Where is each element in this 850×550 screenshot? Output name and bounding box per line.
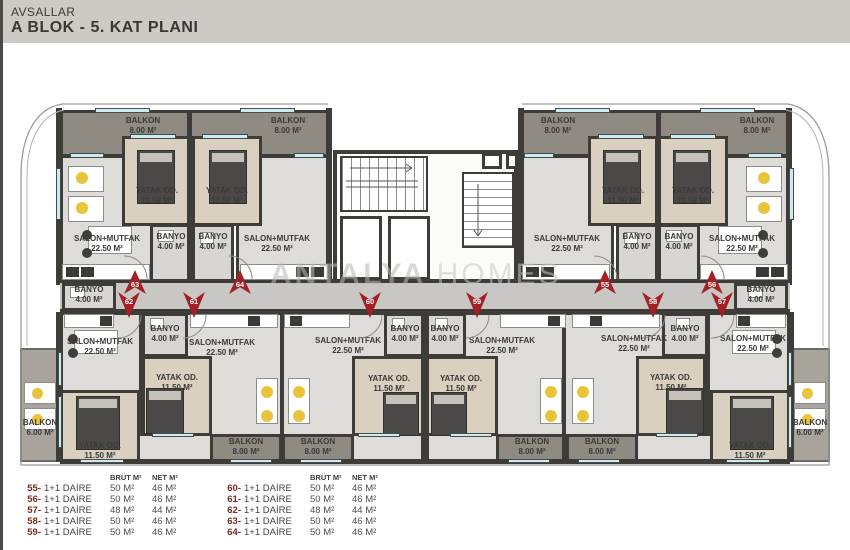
legend-cell: 44 M²: [352, 505, 394, 516]
room-label: SALON+MUTFAK22.50 M²: [588, 334, 680, 353]
watermark-light: HOMES: [437, 258, 562, 291]
legend-cell: NET M²: [352, 473, 394, 482]
window: [358, 433, 400, 437]
legend-cell: 46 M²: [352, 527, 394, 538]
legend-cell: 62-: [218, 505, 244, 516]
legend-cell: 50 M²: [110, 494, 152, 505]
cushion: [802, 388, 813, 399]
room-label: BALKON6.00 M²: [0, 418, 86, 437]
cushion: [261, 386, 273, 398]
cushion: [545, 386, 557, 398]
bed-pillow: [606, 153, 638, 162]
bed-pillow: [79, 399, 117, 408]
bed-pillow: [212, 153, 244, 162]
window: [748, 153, 782, 158]
legend-cell: 1+1 DAİRE: [244, 516, 310, 527]
room-label: BANYO4.00 M²: [633, 232, 725, 251]
cushion: [577, 410, 589, 422]
window: [555, 108, 610, 113]
legend-cell: 46 M²: [352, 494, 394, 505]
legend-cell: NET M²: [152, 473, 194, 482]
window: [508, 459, 550, 463]
legend-cell: 1+1 DAİRE: [244, 505, 310, 516]
legend-cell: 50 M²: [310, 494, 352, 505]
legend-cell: 1+1 DAİRE: [44, 527, 110, 538]
legend-cell: 61-: [218, 494, 244, 505]
legend-table-right: BRÜT M²NET M²60-1+1 DAİRE50 M²46 M²61-1+…: [218, 472, 394, 538]
bed-pillow: [669, 391, 701, 400]
legend-cell: 1+1 DAİRE: [244, 494, 310, 505]
appliance: [590, 316, 602, 326]
cushion: [293, 386, 305, 398]
legend-cell: 55-: [18, 483, 44, 494]
cushion: [545, 410, 557, 422]
room-label: BALKON6.00 M²: [764, 418, 850, 437]
cushion: [758, 172, 770, 184]
bed-pillow: [733, 399, 771, 408]
cushion: [76, 172, 88, 184]
window: [598, 134, 644, 139]
appliance: [548, 316, 560, 326]
legend-cell: 50 M²: [310, 483, 352, 494]
room-label: YATAK OD.11.50 M²: [704, 441, 796, 460]
room-label: SALON+MUTFAK22.50 M²: [302, 336, 394, 355]
cushion: [758, 202, 770, 214]
appliance: [756, 267, 769, 277]
bed-pillow: [676, 153, 708, 162]
window: [788, 352, 792, 386]
window: [240, 108, 295, 113]
legend-cell: 46 M²: [352, 483, 394, 494]
room-label: YATAK OD.11.50 M²: [625, 373, 717, 392]
legend-cell: BRÜT M²: [310, 473, 352, 482]
legend-cell: 59-: [18, 527, 44, 538]
appliance: [66, 267, 79, 277]
bed-pillow: [434, 395, 464, 404]
cushion: [577, 386, 589, 398]
window: [294, 153, 324, 158]
legend-cell: 64-: [218, 527, 244, 538]
watermark: ANTALYAHOMES: [270, 258, 562, 292]
legend-cell: 1+1 DAİRE: [44, 483, 110, 494]
legend-cell: 50 M²: [110, 527, 152, 538]
room-label: BALKON8.00 M²: [512, 116, 604, 135]
window: [152, 433, 194, 437]
legend-cell: 46 M²: [352, 516, 394, 527]
room-label: BALKON8.00 M²: [97, 116, 189, 135]
window: [56, 168, 61, 220]
legend-cell: 57-: [18, 505, 44, 516]
page-title: A BLOK - 5. KAT PLANI: [11, 19, 198, 37]
room-label: SALON+MUTFAK22.50 M²: [176, 338, 268, 357]
legend-cell: 46 M²: [152, 494, 194, 505]
room-label: YATAK OD.11.50 M²: [54, 441, 146, 460]
legend-cell: 63-: [218, 516, 244, 527]
window: [656, 433, 698, 437]
legend-cell: 50 M²: [110, 483, 152, 494]
appliance: [100, 316, 112, 326]
legend-cell: 46 M²: [152, 516, 194, 527]
window: [70, 153, 104, 158]
staircase: [340, 156, 428, 212]
side-balcony: [790, 348, 830, 462]
legend-cell: 1+1 DAİRE: [44, 494, 110, 505]
legend-cell: 1+1 DAİRE: [44, 505, 110, 516]
room-label: BANYO4.00 M²: [167, 232, 259, 251]
room-label: BALKON8.00 M²: [711, 116, 803, 135]
room-label: BALKON8.00 M²: [556, 437, 648, 456]
elevator-shaft: [482, 153, 502, 169]
legend-cell: 46 M²: [152, 527, 194, 538]
appliance: [248, 316, 260, 326]
page-left-border: [0, 0, 3, 550]
room-label: YATAK OD.11.50 M²: [415, 374, 507, 393]
window: [230, 459, 272, 463]
room-label: SALON+MUTFAK22.50 M²: [54, 337, 146, 356]
legend-cell: 1+1 DAİRE: [244, 527, 310, 538]
room-label: BALKON8.00 M²: [242, 116, 334, 135]
bed-pillow: [386, 395, 416, 404]
watermark-bold: ANTALYA: [270, 258, 427, 291]
staircase: [462, 172, 514, 248]
legend-cell: 50 M²: [310, 527, 352, 538]
room-label: SALON+MUTFAK22.50 M²: [707, 334, 799, 353]
appliance: [738, 316, 750, 326]
page: AVSALLAR A BLOK - 5. KAT PLANI BALKON8.0…: [0, 0, 850, 550]
legend-cell: 56-: [18, 494, 44, 505]
window: [524, 153, 554, 158]
header-bar: AVSALLAR A BLOK - 5. KAT PLANI: [0, 0, 850, 43]
appliance: [81, 267, 94, 277]
window: [670, 134, 716, 139]
legend-cell: 44 M²: [152, 505, 194, 516]
room-label: BALKON8.00 M²: [272, 437, 364, 456]
legend-cell: 50 M²: [110, 516, 152, 527]
room-label: SALON+MUTFAK22.50 M²: [456, 336, 548, 355]
legend-cell: BRÜT M²: [110, 473, 152, 482]
cushion: [76, 202, 88, 214]
window: [789, 168, 794, 220]
bed-pillow: [149, 391, 181, 400]
window: [95, 108, 150, 113]
project-name: AVSALLAR: [11, 5, 75, 19]
legend-cell: 1+1 DAİRE: [244, 483, 310, 494]
room-label: YATAK OD.11.50 M²: [647, 186, 739, 205]
legend-cell: 50 M²: [310, 516, 352, 527]
legend-cell: 58-: [18, 516, 44, 527]
legend-cell: 46 M²: [152, 483, 194, 494]
window: [578, 459, 620, 463]
cushion: [32, 388, 43, 399]
cushion: [293, 410, 305, 422]
room-label: YATAK OD.11.50 M²: [131, 373, 223, 392]
appliance: [771, 267, 784, 277]
legend-cell: 60-: [218, 483, 244, 494]
legend-cell: 48 M²: [110, 505, 152, 516]
legend-cell: 48 M²: [310, 505, 352, 516]
window: [300, 459, 342, 463]
legend-table-left: BRÜT M²NET M²55-1+1 DAİRE50 M²46 M²56-1+…: [18, 472, 194, 538]
appliance: [290, 316, 302, 326]
window: [58, 352, 62, 386]
room-label: YATAK OD.11.50 M²: [181, 186, 273, 205]
legend-cell: 1+1 DAİRE: [44, 516, 110, 527]
elevator-shaft: [506, 153, 518, 169]
bed-pillow: [140, 153, 172, 162]
cushion: [261, 410, 273, 422]
window: [700, 108, 755, 113]
